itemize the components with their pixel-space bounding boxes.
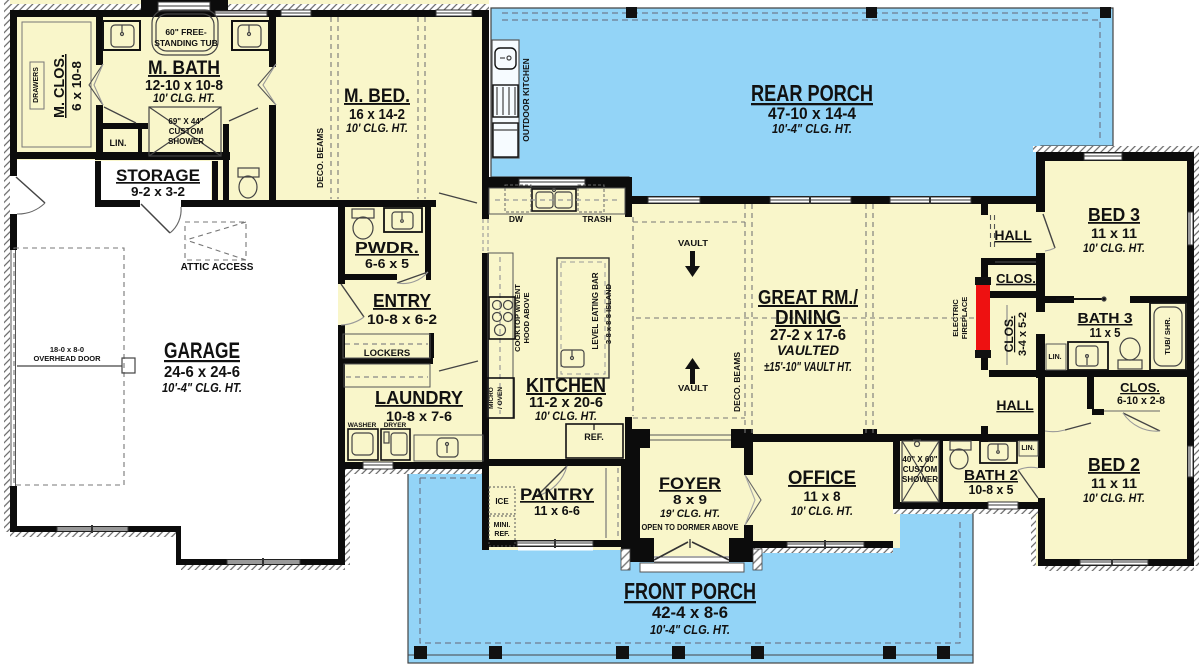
svg-text:DINING: DINING — [775, 307, 841, 329]
svg-text:10-8 x 7-6: 10-8 x 7-6 — [386, 408, 452, 424]
svg-text:ELECTRIC: ELECTRIC — [951, 299, 960, 337]
svg-text:/ OVEN: / OVEN — [497, 387, 504, 409]
svg-text:MINI.: MINI. — [494, 522, 511, 529]
svg-text:VAULT: VAULT — [678, 238, 709, 248]
svg-text:DRAWERS: DRAWERS — [33, 67, 40, 103]
svg-text:LIN.: LIN. — [1048, 354, 1061, 361]
svg-text:LIN.: LIN. — [1021, 445, 1034, 452]
svg-text:18-0 x 8-0: 18-0 x 8-0 — [50, 345, 84, 354]
svg-text:10' CLG. HT.: 10' CLG. HT. — [153, 91, 215, 105]
svg-text:60" FREE-: 60" FREE- — [165, 27, 207, 37]
svg-text:BED 3: BED 3 — [1088, 205, 1140, 225]
svg-text:10'-4" CLG. HT.: 10'-4" CLG. HT. — [772, 121, 852, 136]
svg-text:LAUNDRY: LAUNDRY — [375, 388, 463, 408]
svg-text:19' CLG. HT.: 19' CLG. HT. — [660, 508, 720, 520]
svg-text:LIN.: LIN. — [110, 138, 127, 148]
svg-text:ENTRY: ENTRY — [373, 291, 431, 311]
svg-text:ATTIC ACCESS: ATTIC ACCESS — [181, 262, 254, 273]
svg-text:M. CLOS.: M. CLOS. — [51, 54, 68, 118]
svg-text:HALL: HALL — [996, 397, 1034, 413]
svg-text:GARAGE: GARAGE — [164, 338, 240, 363]
svg-text:3-8 x 8-8 ISLAND: 3-8 x 8-8 ISLAND — [604, 283, 613, 344]
svg-text:REF.: REF. — [584, 432, 604, 442]
svg-text:PWDR.: PWDR. — [355, 240, 419, 257]
svg-text:SHOWER: SHOWER — [168, 137, 204, 146]
svg-text:CLOS.: CLOS. — [996, 271, 1036, 286]
svg-text:±15'-10" VAULT HT.: ±15'-10" VAULT HT. — [764, 359, 852, 374]
svg-text:TUB/ SHR.: TUB/ SHR. — [1163, 317, 1172, 355]
svg-text:HOOD ABOVE: HOOD ABOVE — [522, 293, 531, 344]
svg-text:TRASH: TRASH — [582, 214, 611, 224]
svg-text:DECO. BEAMS: DECO. BEAMS — [315, 128, 325, 188]
svg-text:OFFICE: OFFICE — [788, 468, 856, 489]
svg-text:OVERHEAD DOOR: OVERHEAD DOOR — [33, 354, 101, 363]
svg-text:LEVEL EATING BAR: LEVEL EATING BAR — [591, 272, 600, 349]
svg-text:VAULTED: VAULTED — [777, 342, 839, 358]
svg-text:M. BATH: M. BATH — [148, 58, 220, 79]
svg-text:CUSTOM: CUSTOM — [903, 465, 938, 474]
svg-text:10'-4" CLG. HT.: 10'-4" CLG. HT. — [162, 380, 242, 395]
svg-text:OUTDOOR KITCHEN: OUTDOOR KITCHEN — [521, 58, 531, 142]
svg-text:42-4 x 8-6: 42-4 x 8-6 — [652, 603, 728, 622]
svg-text:HALL: HALL — [994, 227, 1032, 243]
svg-text:COOKTOP w/VENT: COOKTOP w/VENT — [513, 284, 522, 352]
svg-text:10-8 x 5: 10-8 x 5 — [969, 482, 1014, 497]
svg-text:6 x 10-8: 6 x 10-8 — [69, 61, 84, 111]
svg-text:6-10 x 2-8: 6-10 x 2-8 — [1117, 395, 1165, 407]
svg-text:ICE: ICE — [495, 497, 509, 506]
svg-text:11 x 11: 11 x 11 — [1091, 225, 1137, 241]
svg-text:10' CLG. HT.: 10' CLG. HT. — [346, 121, 408, 135]
svg-text:10' CLG. HT.: 10' CLG. HT. — [535, 409, 597, 423]
svg-text:VAULT: VAULT — [678, 383, 709, 393]
svg-text:GREAT RM./: GREAT RM./ — [758, 287, 858, 309]
svg-text:6-6 x 5: 6-6 x 5 — [365, 256, 409, 271]
svg-text:LOCKERS: LOCKERS — [364, 348, 410, 359]
svg-text:STANDING TUB: STANDING TUB — [154, 38, 218, 48]
svg-text:11 x 11: 11 x 11 — [1091, 475, 1137, 491]
svg-text:40" X 60": 40" X 60" — [902, 455, 937, 464]
svg-text:FIREPLACE: FIREPLACE — [960, 297, 969, 340]
svg-text:10' CLG. HT.: 10' CLG. HT. — [1083, 491, 1145, 505]
svg-text:8 x 9: 8 x 9 — [673, 492, 707, 507]
svg-text:BED 2: BED 2 — [1088, 455, 1140, 475]
svg-text:11 x 5: 11 x 5 — [1090, 325, 1121, 340]
svg-text:10' CLG. HT.: 10' CLG. HT. — [791, 504, 853, 518]
svg-text:FOYER: FOYER — [659, 474, 721, 493]
svg-text:10' CLG. HT.: 10' CLG. HT. — [1083, 241, 1145, 255]
svg-text:24-6 x 24-6: 24-6 x 24-6 — [164, 364, 240, 381]
svg-text:3-4 x 5-2: 3-4 x 5-2 — [1017, 312, 1029, 356]
svg-text:STORAGE: STORAGE — [116, 166, 200, 185]
svg-text:REF.: REF. — [494, 531, 509, 538]
svg-text:CLOS.: CLOS. — [1120, 380, 1160, 395]
svg-text:11 x 8: 11 x 8 — [804, 488, 841, 504]
svg-text:9-2 x 3-2: 9-2 x 3-2 — [131, 184, 185, 199]
svg-text:M. BED.: M. BED. — [344, 86, 410, 107]
svg-text:DECO. BEAMS: DECO. BEAMS — [732, 352, 742, 412]
svg-text:10'-4" CLG. HT.: 10'-4" CLG. HT. — [650, 622, 730, 637]
svg-text:11 x 6-6: 11 x 6-6 — [534, 503, 580, 518]
svg-text:69" X 44": 69" X 44" — [168, 117, 203, 126]
svg-text:FRONT PORCH: FRONT PORCH — [624, 578, 756, 604]
svg-text:WASHER: WASHER — [348, 422, 377, 429]
svg-text:10-8 x 6-2: 10-8 x 6-2 — [367, 311, 437, 327]
svg-text:CUSTOM: CUSTOM — [169, 127, 204, 136]
svg-text:OPEN TO DORMER ABOVE: OPEN TO DORMER ABOVE — [642, 522, 739, 532]
svg-text:MICRO: MICRO — [488, 387, 495, 409]
svg-text:PANTRY: PANTRY — [520, 485, 595, 504]
svg-text:DW: DW — [509, 214, 524, 224]
svg-text:REAR PORCH: REAR PORCH — [751, 80, 873, 106]
svg-text:CLOS.: CLOS. — [1002, 316, 1016, 353]
svg-text:SHOWER: SHOWER — [902, 475, 938, 484]
